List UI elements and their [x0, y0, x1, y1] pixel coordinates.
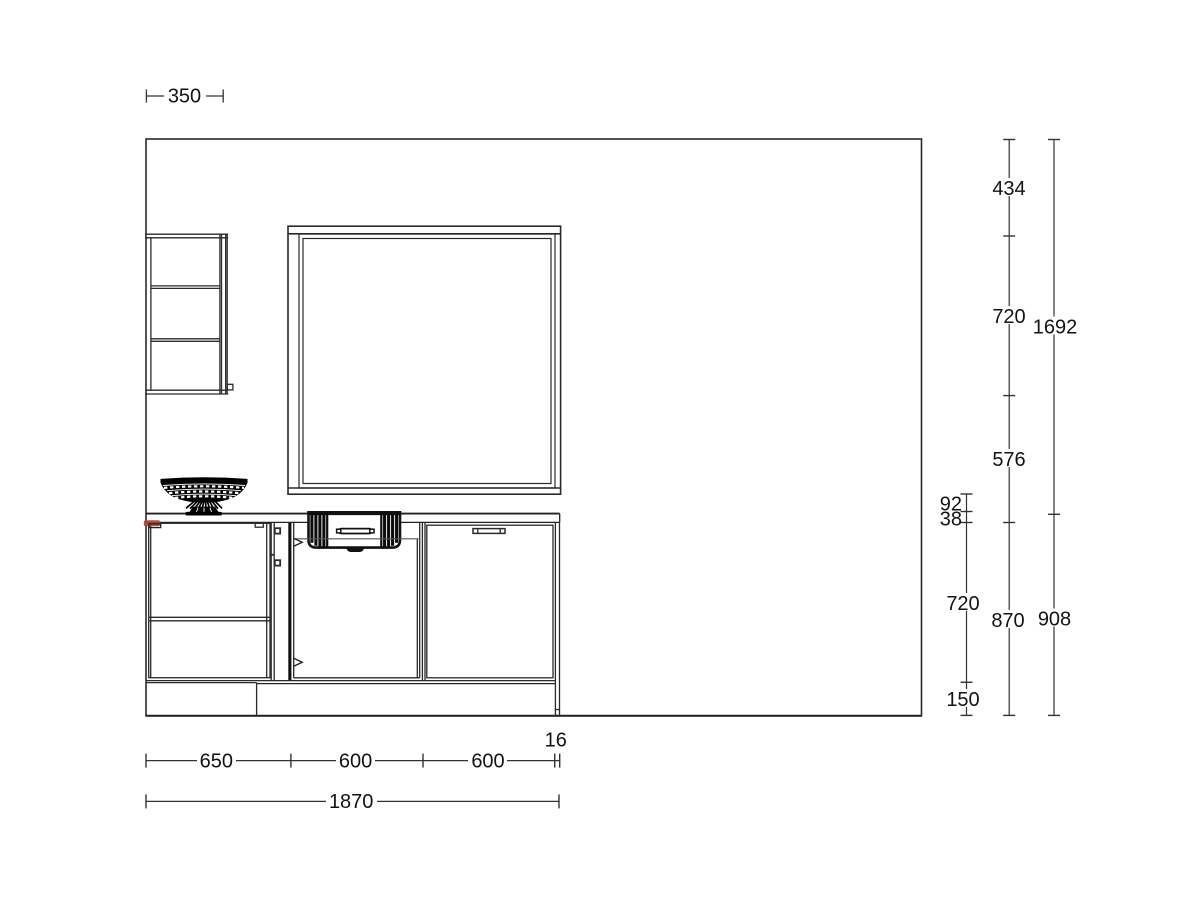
svg-text:720: 720	[946, 593, 979, 615]
svg-text:600: 600	[471, 750, 504, 772]
svg-text:720: 720	[992, 306, 1025, 328]
svg-text:1692: 1692	[1033, 316, 1078, 338]
svg-text:650: 650	[200, 750, 233, 772]
svg-text:38: 38	[940, 509, 962, 531]
svg-text:1870: 1870	[329, 791, 374, 813]
svg-text:16: 16	[545, 729, 567, 751]
svg-text:350: 350	[168, 86, 201, 108]
svg-text:576: 576	[992, 449, 1025, 471]
svg-text:150: 150	[946, 689, 979, 711]
svg-text:870: 870	[991, 610, 1024, 632]
svg-text:434: 434	[992, 178, 1025, 200]
svg-text:908: 908	[1038, 608, 1071, 630]
svg-text:600: 600	[339, 750, 372, 772]
